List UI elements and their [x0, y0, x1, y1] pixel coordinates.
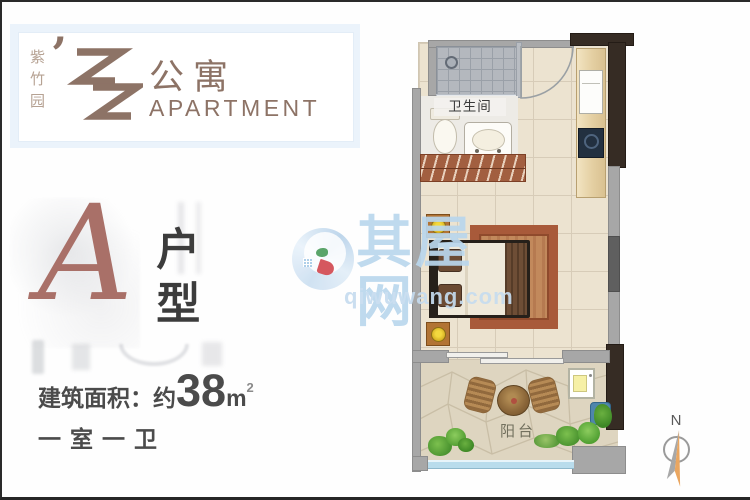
bed-headboard [429, 240, 438, 318]
wall-dark-right [608, 42, 626, 168]
entry-door-swing-icon [520, 46, 576, 102]
watermark-grid-accent [303, 258, 312, 267]
watermark-red-accent [316, 259, 336, 277]
tap-icon [497, 149, 501, 153]
table-flower-icon [511, 398, 517, 404]
floorplan-drawing: 卫生间 [410, 32, 636, 482]
sliding-door-panel [480, 358, 564, 364]
brand-vertical-name: 紫竹园 [29, 49, 44, 115]
balcony-window-glass [428, 460, 574, 469]
wall-balcony-divider-right [562, 350, 610, 363]
wall-balcony-divider-left [412, 350, 449, 363]
bathroom-sink [464, 122, 512, 158]
bed-sheet-fold [465, 243, 468, 315]
wardrobe [420, 154, 526, 182]
wall-left [412, 88, 421, 472]
shower-area [436, 46, 518, 96]
area-unit: m [226, 385, 246, 411]
brand-name-en: APARTMENT [149, 95, 320, 122]
washer-tub [573, 375, 587, 392]
area-exponent: 2 [247, 380, 254, 395]
kitchen-sink [579, 70, 603, 114]
area-label: 建筑面积：约 [38, 385, 176, 411]
plant-cluster-left [426, 426, 478, 464]
compass: N [652, 412, 700, 492]
watermark-swirl [304, 232, 346, 274]
cooktop-burner-icon [584, 134, 599, 149]
wall-right-window-segment [608, 236, 620, 292]
nightstand [426, 214, 450, 238]
lamp-icon [431, 327, 446, 342]
bed-foot-blanket [505, 243, 527, 315]
brand-zz-logo-icon [65, 47, 143, 123]
logo-card: 紫竹园 ’ 公寓 APARTMENT [18, 32, 354, 142]
lamp-icon [431, 219, 446, 234]
balcony-label: 阳台 [494, 420, 542, 441]
faint-shape [72, 344, 90, 370]
unit-letter: A [38, 188, 133, 320]
bed-pillow [438, 249, 462, 272]
plant-cluster-right [532, 420, 616, 454]
faint-shape [202, 342, 222, 366]
tap-icon [475, 149, 479, 153]
nightstand [426, 322, 450, 346]
compass-needle-icon [662, 427, 690, 491]
area-value: 38 [176, 365, 226, 416]
compass-north-label: N [652, 412, 700, 429]
sink-basin [472, 129, 505, 151]
shower-head-icon [445, 56, 458, 69]
toilet-bowl [433, 119, 457, 154]
area-line: 建筑面积：约38m2 [38, 368, 254, 413]
cooktop [578, 128, 604, 158]
washing-machine [568, 368, 595, 399]
washer-knob [589, 374, 592, 377]
faint-shape [119, 344, 189, 366]
bathroom-label: 卫生间 [434, 98, 506, 116]
watermark-green-accent [316, 248, 328, 257]
bed [429, 240, 530, 318]
watermark-logo-icon [292, 228, 354, 290]
floorplan-poster: 紫竹园 ’ 公寓 APARTMENT A 户型 建筑面积：约38m2 一室一卫 [0, 0, 750, 500]
layout-label: 一室一卫 [38, 420, 166, 454]
brand-name-cn: 公寓 [149, 49, 237, 100]
sink-divider [582, 83, 600, 84]
bed-pillow [438, 284, 462, 307]
balcony-table [497, 385, 530, 416]
unit-type-label: 户型 [150, 226, 196, 334]
wardrobe-rod [421, 168, 525, 169]
